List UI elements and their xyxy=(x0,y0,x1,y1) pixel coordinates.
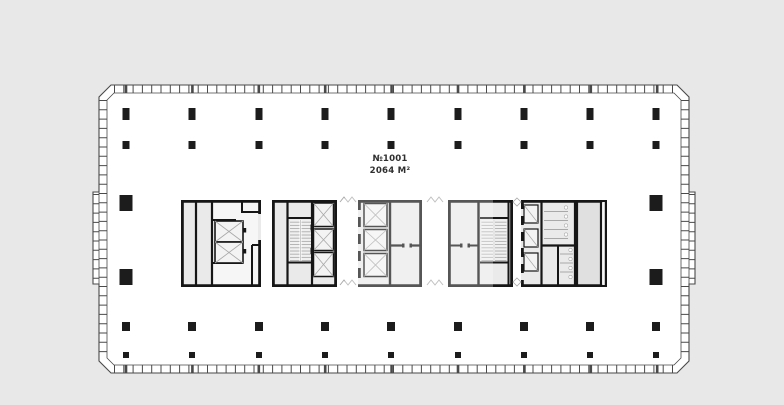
toilet-fixture-icon xyxy=(564,224,567,227)
structural-column xyxy=(387,322,395,331)
structural-column xyxy=(388,352,394,358)
structural-column xyxy=(520,322,528,331)
structural-column xyxy=(255,322,263,331)
structural-column xyxy=(650,195,663,211)
structural-column xyxy=(455,108,462,120)
toilet-fixture-icon xyxy=(569,248,572,251)
core-block-wc xyxy=(521,200,607,287)
structural-column xyxy=(455,141,462,149)
structural-column xyxy=(188,322,196,331)
structural-column xyxy=(454,322,462,331)
floor-plan-drawing: №1001 2064 M² xyxy=(0,0,784,405)
structural-column xyxy=(322,108,329,120)
service-strip xyxy=(602,202,605,285)
structural-column xyxy=(189,352,195,358)
structural-column xyxy=(521,352,527,358)
structural-column xyxy=(189,108,196,120)
structural-column xyxy=(650,269,663,285)
structural-column xyxy=(256,108,263,120)
structural-column xyxy=(586,322,594,331)
structural-column xyxy=(123,352,129,358)
structural-column xyxy=(653,352,659,358)
toilet-fixture-icon xyxy=(569,257,572,260)
door-jamb xyxy=(243,228,246,233)
toilet-fixture-icon xyxy=(569,266,572,269)
structural-column xyxy=(653,108,660,120)
structural-column xyxy=(256,352,262,358)
structural-column xyxy=(388,141,395,149)
service-room xyxy=(578,203,600,284)
structural-column xyxy=(123,108,130,120)
structural-column xyxy=(653,141,660,149)
toilet-fixture-icon xyxy=(564,233,567,236)
structural-column xyxy=(587,108,594,120)
watermark xyxy=(345,183,493,301)
structural-column xyxy=(321,322,329,331)
structural-column xyxy=(587,352,593,358)
door-jamb xyxy=(243,249,246,254)
structural-column xyxy=(122,322,130,331)
core-block-stair-a xyxy=(272,200,337,287)
structural-column xyxy=(388,108,395,120)
structural-column xyxy=(189,141,196,149)
door-jamb xyxy=(311,248,315,254)
floor-plan-canvas: №1001 2064 M² xyxy=(0,0,784,405)
toilet-fixture-icon xyxy=(564,215,567,218)
toilet-fixture-icon xyxy=(569,275,572,278)
area-label: 2064 M² xyxy=(370,166,411,176)
structural-column xyxy=(322,352,328,358)
unit-number-label: №1001 xyxy=(372,154,407,164)
door-jamb xyxy=(311,225,315,231)
structural-column xyxy=(455,352,461,358)
structural-column xyxy=(587,141,594,149)
core-block-elevator-a xyxy=(181,200,261,287)
toilet-fixture-icon xyxy=(564,206,567,209)
structural-column xyxy=(120,269,133,285)
structural-column xyxy=(123,141,130,149)
structural-column xyxy=(256,141,263,149)
structural-column xyxy=(521,141,528,149)
structural-column xyxy=(652,322,660,331)
structural-column xyxy=(521,108,528,120)
structural-column xyxy=(322,141,329,149)
structural-column xyxy=(120,195,133,211)
